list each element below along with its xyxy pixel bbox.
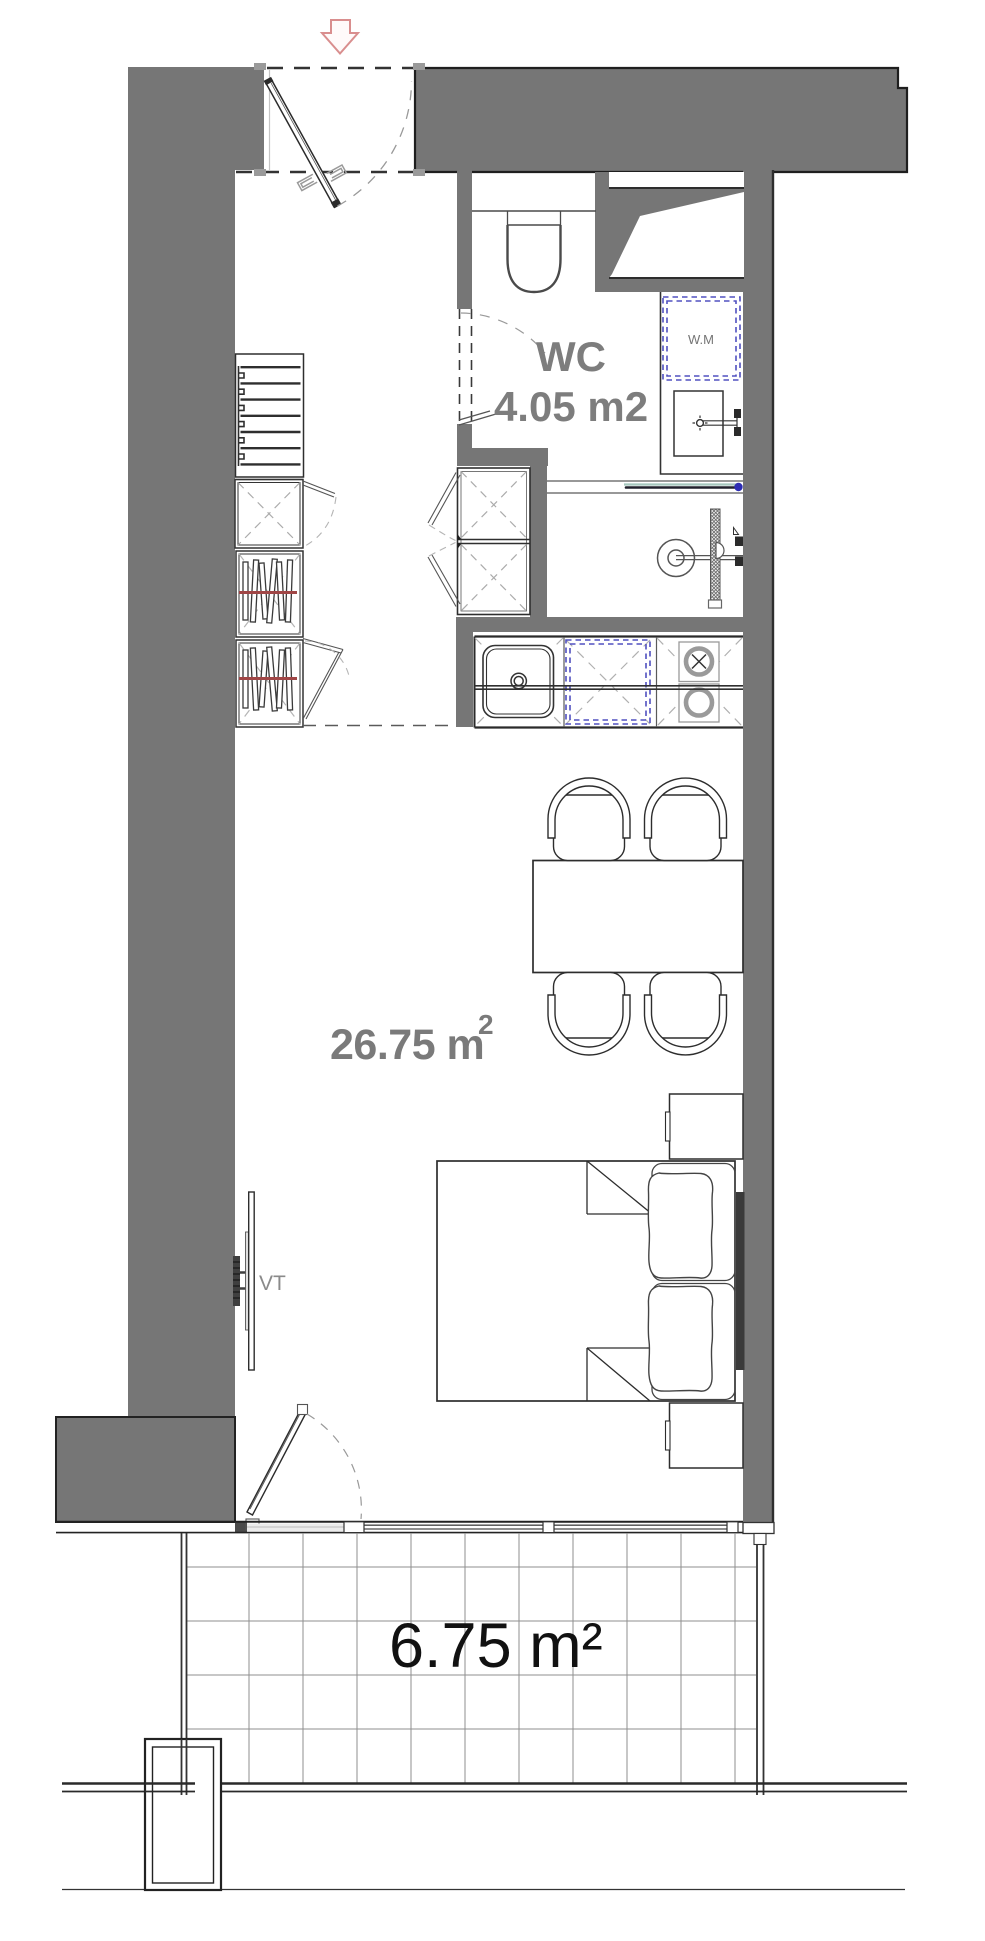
svg-text:26.75 m: 26.75 m [330, 1021, 484, 1069]
svg-text:4.05 m2: 4.05 m2 [494, 383, 648, 430]
svg-text:W.M: W.M [688, 332, 714, 347]
svg-text:2: 2 [478, 1009, 494, 1040]
svg-text:6.75 m²: 6.75 m² [389, 1611, 603, 1681]
svg-text:VT: VT [259, 1272, 286, 1295]
svg-text:WC: WC [536, 333, 606, 380]
